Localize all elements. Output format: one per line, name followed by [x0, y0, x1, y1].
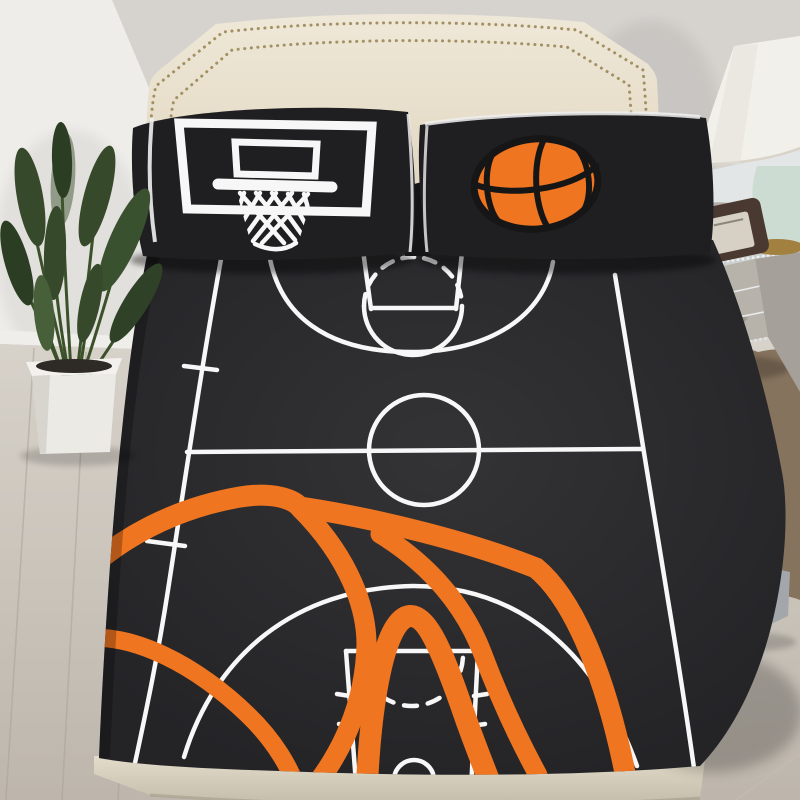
fitted-sheet-bed [62, 240, 786, 800]
pillow-left [132, 108, 415, 260]
scene-canvas [0, 0, 800, 800]
lane-hash-l1 [337, 694, 350, 696]
half-court-line [187, 449, 643, 452]
lane-hash-r1 [474, 694, 487, 696]
pot-soil [36, 359, 112, 373]
hoop-rim [218, 184, 332, 187]
planter [26, 358, 122, 454]
bedroom-scene [0, 0, 800, 800]
pillow-right [419, 113, 714, 259]
